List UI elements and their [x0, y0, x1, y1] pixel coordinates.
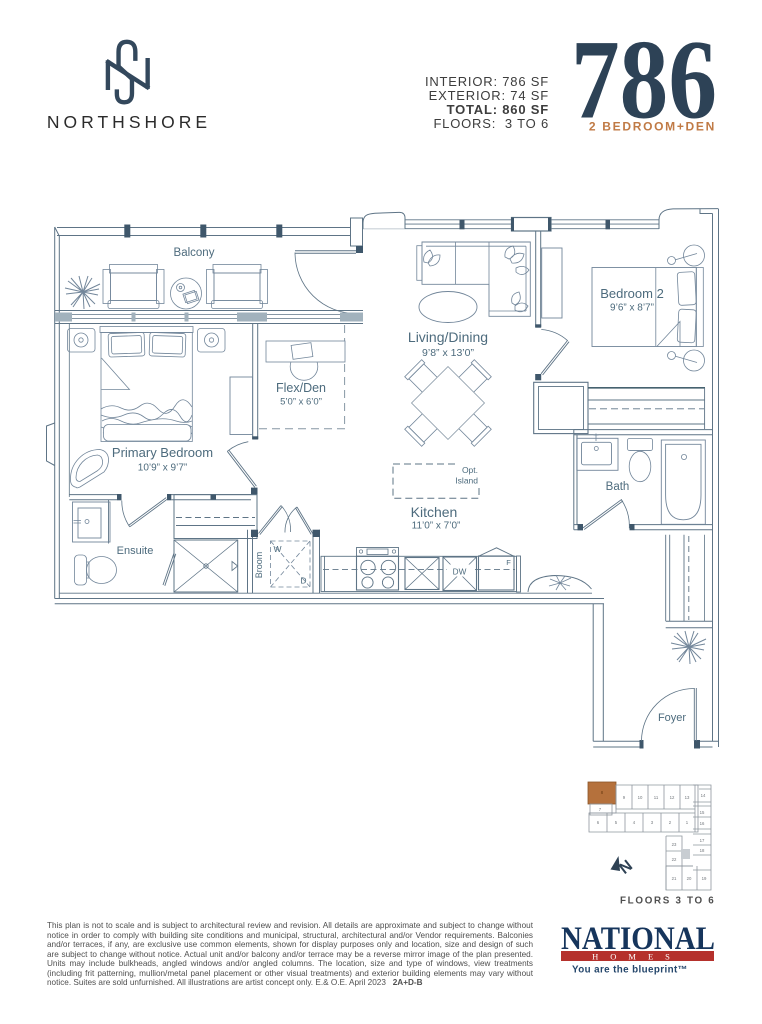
- svg-text:You are the blueprint™: You are the blueprint™: [572, 965, 688, 976]
- svg-text:Foyer: Foyer: [658, 712, 686, 724]
- svg-text:FLOORS 3 TO 6: FLOORS 3 TO 6: [620, 896, 715, 907]
- svg-text:19: 19: [702, 876, 707, 881]
- svg-text:10: 10: [638, 795, 643, 800]
- svg-text:12: 12: [670, 795, 675, 800]
- svg-text:5: 5: [615, 820, 618, 825]
- svg-text:23: 23: [672, 842, 677, 847]
- svg-text:3: 3: [651, 820, 654, 825]
- svg-text:Island: Island: [455, 476, 478, 486]
- svg-text:Opt.: Opt.: [462, 465, 478, 475]
- svg-text:Balcony: Balcony: [174, 247, 215, 259]
- svg-text:1: 1: [686, 820, 689, 825]
- svg-text:4: 4: [633, 820, 636, 825]
- svg-text:Flex/Den: Flex/Den: [276, 381, 326, 395]
- svg-text:N: N: [616, 857, 636, 878]
- svg-text:16: 16: [700, 821, 705, 826]
- svg-text:W: W: [273, 544, 281, 554]
- svg-text:13: 13: [685, 795, 690, 800]
- svg-text:Ensuite: Ensuite: [117, 545, 154, 557]
- svg-text:Bath: Bath: [606, 481, 630, 493]
- svg-text:5’0” x 6’0”: 5’0” x 6’0”: [280, 397, 322, 408]
- svg-text:9’8” x 13’0”: 9’8” x 13’0”: [422, 347, 474, 359]
- svg-text:20: 20: [687, 876, 692, 881]
- svg-text:17: 17: [700, 838, 705, 843]
- svg-text:HOMES: HOMES: [592, 952, 682, 962]
- svg-text:21: 21: [672, 876, 677, 881]
- svg-text:7: 7: [599, 807, 602, 812]
- svg-text:Living/Dining: Living/Dining: [408, 329, 488, 345]
- svg-text:10’9” x 9’7”: 10’9” x 9’7”: [138, 463, 187, 474]
- svg-text:D: D: [300, 576, 306, 586]
- svg-text:14: 14: [701, 793, 706, 798]
- svg-text:Bedroom 2: Bedroom 2: [600, 286, 664, 301]
- svg-text:9’6” x 8’7”: 9’6” x 8’7”: [610, 303, 654, 314]
- svg-text:11: 11: [654, 795, 659, 800]
- svg-text:9: 9: [623, 795, 626, 800]
- svg-text:Broom: Broom: [254, 552, 264, 579]
- svg-text:18: 18: [700, 848, 705, 853]
- svg-text:2: 2: [669, 820, 672, 825]
- svg-text:Primary Bedroom: Primary Bedroom: [112, 445, 213, 460]
- svg-text:Kitchen: Kitchen: [411, 504, 458, 520]
- svg-text:DW: DW: [453, 568, 467, 577]
- svg-text:6: 6: [597, 820, 600, 825]
- svg-text:11’0” x 7’0”: 11’0” x 7’0”: [412, 521, 461, 532]
- svg-text:15: 15: [700, 810, 705, 815]
- svg-text:22: 22: [672, 857, 677, 862]
- svg-text:F: F: [506, 558, 511, 567]
